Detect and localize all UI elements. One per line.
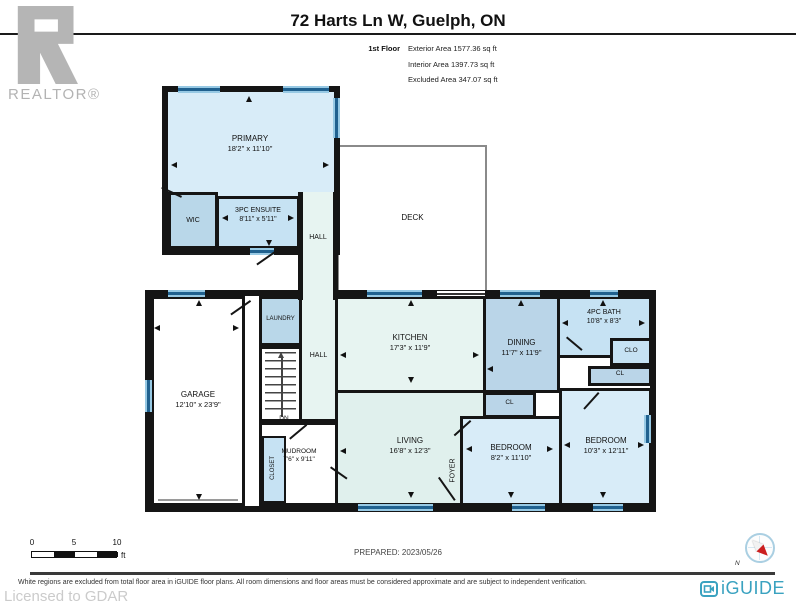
window (590, 290, 618, 297)
excluded-area: Excluded Area 347.07 sq ft (408, 75, 498, 84)
dimension-arrow (196, 494, 202, 500)
window (178, 86, 220, 93)
label-wic: WIC (170, 216, 216, 225)
dimension-arrow (323, 162, 329, 168)
title-divider (0, 33, 796, 35)
window (145, 380, 152, 412)
stairs (259, 346, 302, 422)
label-cl-dining: CL (484, 399, 535, 407)
label-clo: CLO (611, 347, 651, 355)
page-title: 72 Harts Ln W, Guelph, ON (0, 11, 796, 31)
dimension-arrow (233, 325, 239, 331)
label-laundry: LAUNDRY (260, 316, 301, 324)
iguide-logo-text: iGUIDE (721, 578, 785, 599)
floor-plan-page: REALTOR® 72 Harts Ln W, Guelph, ON 1st F… (0, 0, 796, 610)
footer-disclaimer: White regions are excluded from total fl… (18, 579, 678, 586)
dimension-arrow (171, 162, 177, 168)
label-dining: DINING11'7" x 11'9" (483, 338, 560, 358)
label-cl-hall: CL (589, 370, 651, 378)
scale-tick-5: 5 (69, 538, 79, 547)
window (500, 290, 540, 297)
room-hall-upper (298, 192, 338, 300)
dimension-arrow (600, 300, 606, 306)
dimension-arrow (246, 96, 252, 102)
scale-tick-10: 10 (109, 538, 125, 547)
sliding-door-line (437, 293, 485, 295)
window (512, 504, 545, 511)
label-garage: GARAGE12'10" x 23'9" (156, 390, 240, 410)
iguide-logo: iGUIDE (700, 578, 785, 599)
dimension-arrow (638, 442, 644, 448)
label-hall-upper: HALL (300, 233, 336, 242)
dimension-arrow (408, 377, 414, 383)
dimension-arrow (600, 492, 606, 498)
dimension-arrow (408, 492, 414, 498)
dimension-arrow (518, 300, 524, 306)
label-deck: DECK (350, 213, 475, 223)
dimension-arrow (473, 352, 479, 358)
dimension-arrow (154, 325, 160, 331)
realtor-logo-text: REALTOR® (8, 86, 101, 103)
label-hall-main: HALL (300, 351, 337, 360)
label-bedroom-small: BEDROOM8'2" x 11'10" (462, 443, 560, 463)
licensed-to: Licensed to GDAR (4, 588, 128, 605)
label-primary: PRIMARY18'2" x 11'10" (176, 134, 324, 154)
window (593, 504, 623, 511)
dimension-arrow (639, 320, 645, 326)
label-foyer: FOYER (448, 446, 457, 496)
dimension-arrow (564, 442, 570, 448)
dimension-arrow (487, 366, 493, 372)
label-bath: 4PC BATH10'8" x 8'3" (558, 308, 650, 326)
dimension-arrow (547, 446, 553, 452)
label-closet: CLOSET (270, 438, 278, 498)
floor-stats: Exterior Area 1577.36 sq ft Interior Are… (408, 44, 498, 84)
label-dn: DN (270, 415, 298, 423)
scale-tick-0: 0 (27, 538, 37, 547)
interior-area: Interior Area 1397.73 sq ft (408, 60, 498, 69)
dimension-arrow (340, 448, 346, 454)
dimension-arrow (508, 492, 514, 498)
iguide-logo-icon (700, 581, 718, 597)
stair-direction-line (281, 357, 283, 417)
dimension-arrow (466, 446, 472, 452)
window (358, 504, 433, 511)
dimension-arrow (562, 320, 568, 326)
footer-divider (30, 572, 775, 575)
dimension-arrow (288, 215, 294, 221)
stair-up-arrow-icon (278, 352, 284, 358)
label-kitchen: KITCHEN17'3" x 11'9" (335, 333, 485, 353)
label-ensuite: 3PC ENSUITE8'11" x 5'11" (218, 206, 298, 224)
dimension-arrow (222, 215, 228, 221)
compass-icon (745, 533, 775, 563)
dimension-arrow (196, 300, 202, 306)
window (333, 98, 340, 138)
exterior-area: Exterior Area 1577.36 sq ft (408, 44, 498, 53)
window (367, 290, 422, 297)
compass-north-label: N (735, 560, 740, 567)
window (283, 86, 329, 93)
dimension-arrow (408, 300, 414, 306)
dimension-arrow (266, 240, 272, 246)
window (168, 290, 205, 297)
dimension-arrow (340, 352, 346, 358)
floor-label: 1st Floor (280, 44, 400, 53)
prepared-date: PREPARED: 2023/05/26 (0, 548, 796, 557)
